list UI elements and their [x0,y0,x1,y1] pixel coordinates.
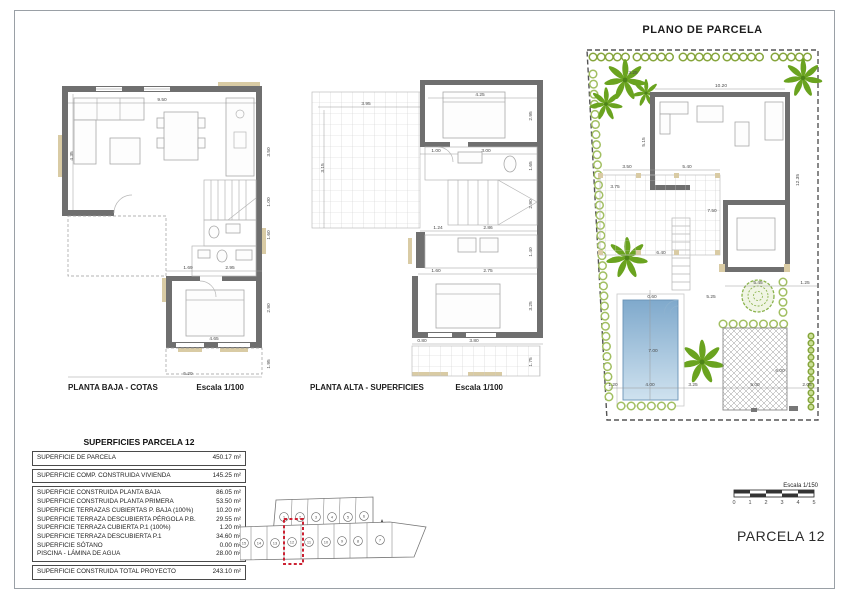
chair [198,118,205,128]
dim-label: 0.80 [417,338,427,344]
window-accent [58,135,62,177]
wall [416,232,425,268]
wall [723,200,728,272]
dim-label: 3.15 [320,163,326,173]
sink [198,250,210,258]
dim-label: 5.25 [706,294,716,300]
table-row: SUPERFICIE TERRAZA DESCUBIERTA P.1 34.60… [37,533,241,542]
dim-label: 2.90 [528,199,534,209]
dim-label: 3.00 [481,148,491,154]
dim-label: 3.95 [361,101,371,107]
surfaces-table: SUPERFICIES PARCELA 12 SUPERFICIE DE PAR… [32,437,246,583]
chair [157,118,164,128]
dim-label: 3.50 [266,147,272,157]
planta-alta-caption: PLANTA ALTA - SUPERFICIES Escala 1/100 [310,383,503,392]
dim-label: 7.00 [648,348,658,354]
sink [458,152,482,163]
dining-table [164,112,198,160]
dim-label: 5.40 [682,164,692,170]
table-row: SUPERFICIE TERRAZA CUBIERTA P.1 (100%) 1… [37,524,241,533]
scale-tick: 3 [780,500,783,505]
door-arc [114,195,132,213]
dim-label: 2.95 [528,111,534,121]
site-plan-drawing: 3.25 10.20 5.15 12.35 3.50 5.40 3.75 7.5… [575,40,830,430]
plan-caption: PLANTA BAJA - COTAS [68,383,158,392]
chair [198,138,205,148]
window-accent [162,278,166,302]
parcel-number: 10 [324,540,329,545]
surfaces-table-title: SUPERFICIES PARCELA 12 [32,437,246,447]
appliance [458,238,476,252]
window [428,333,452,337]
planta-baja-caption: PLANTA BAJA - COTAS Escala 1/100 [68,383,244,392]
wall [62,210,114,216]
kitchen-island [735,122,749,146]
dim-label: 1.69 [183,265,193,271]
dim-label: 0.60 [647,294,657,300]
dim-label: 5.45 [753,280,763,286]
planta-alta-drawing: 3.95 3.15 4.25 2.95 1.00 3.00 1.65 [308,80,543,380]
plan-scale: Escala 1/100 [455,383,503,392]
sofa [660,102,688,114]
dim-label: 2.05 [802,382,812,388]
toilet [217,250,227,262]
wall [412,276,418,332]
wall [256,86,262,348]
dim-label: 3.80 [469,338,479,344]
drawing-sheet: 9.50 4.35 3.50 1.00 1.60 1.69 2.95 2.90 … [0,0,849,600]
dim-label: 1.00 [266,197,272,207]
terrace-outline [68,216,166,276]
wall [166,276,200,281]
site-plan-title: PLANO DE PARCELA [575,24,830,36]
scale-tick: 4 [796,500,799,505]
table-row: PISCINA - LÁMINA DE AGUA 28.00 m² [37,550,241,559]
dim-label: 1.24 [433,225,443,231]
wall [166,276,172,348]
scale-bar: 0 1 2 3 4 5 [730,489,824,505]
wall [723,200,790,205]
parcel-number: 13 [273,541,278,546]
dim-label: 1.75 [528,357,534,367]
scale-tick: 5 [812,500,815,505]
sofa [74,120,96,164]
dim-label: 4.65 [209,336,219,342]
kitchen-counter [765,102,783,140]
table-row: SUPERFICIE CONSTRUIDA PLANTA PRIMERA 53.… [37,498,241,507]
gate [751,408,757,412]
dim-label: 3.25 [688,382,698,388]
terrace-grid [312,92,420,228]
table-row: SUPERFICIE DE PARCELA 450.17 m² [37,454,241,463]
sofa [660,114,670,134]
plan-caption: PLANTA ALTA - SUPERFICIES [310,383,424,392]
dim-label: 5.15 [641,137,647,147]
bed [737,218,775,250]
dim-label: 1.25 [800,280,810,286]
stairs [448,180,537,225]
wall [420,80,425,147]
shower [236,250,252,260]
toilet [504,156,516,172]
wall [62,86,68,216]
table-row: SUPERFICIE COMP. CONSTRUIDA VIVIENDA 145… [37,472,241,481]
window-accent [178,348,202,352]
wall [723,267,790,272]
parcel-key-plan: 1 2 3 4 5 6 15 14 13 12 11 [240,485,440,585]
bed [443,92,505,138]
parcel-number: 14 [257,541,262,546]
parcel-number: 12 [290,540,295,545]
dim-label: 2.75 [483,268,493,274]
sofa [74,98,144,120]
dim-label: 1.60 [266,230,272,240]
window-accent [784,264,790,272]
table-section: SUPERFICIE CONSTRUIDA PLANTA BAJA 86.05 … [32,486,246,562]
window-accent [220,348,248,352]
dim-label: 3.50 [622,164,632,170]
dim-label: 1.65 [528,161,534,171]
dim-label: 4.00 [645,382,655,388]
dim-label: 6.00 [775,368,785,374]
window-accent [408,238,412,264]
dim-label: 2.86 [483,225,493,231]
stairs [204,180,256,220]
dim-label: 2.95 [225,265,235,271]
dim-label: 1.60 [431,268,441,274]
dim-label: 4.25 [475,92,485,98]
dim-label: 5.20 [183,371,193,377]
sink [226,224,240,233]
table-row: SUPERFICIE TERRAZA DESCUBIERTA PÉRGOLA P… [37,516,241,525]
wall [222,276,262,281]
toilet [209,226,219,238]
scale-tick: 2 [764,500,767,505]
dim-label: 3.75 [610,184,620,190]
table-section: SUPERFICIE DE PARCELA 450.17 m² [32,451,246,466]
bed [186,290,244,336]
dining-table [697,106,723,122]
dim-label: 12.35 [795,174,801,186]
dim-label: 1.40 [528,247,534,257]
sheet-name: PARCELA 12 [700,528,825,544]
table-section: SUPERFICIE CONSTRUIDA TOTAL PROYECTO 243… [32,565,246,580]
dim-label: 4.35 [69,151,75,161]
table-section: SUPERFICIE COMP. CONSTRUIDA VIVIENDA 145… [32,469,246,484]
window-accent [719,264,725,272]
wall [650,92,790,97]
table-row: SUPERFICIE CONSTRUIDA TOTAL PROYECTO 243… [37,568,241,577]
chair [157,138,164,148]
scale-tick: 0 [732,500,735,505]
appliance [480,238,498,252]
dim-label: 7.50 [707,208,717,214]
window [176,343,204,347]
dim-label: 3.25 [528,301,534,311]
window-accent [262,228,266,254]
plan-scale: Escala 1/100 [196,383,244,392]
scale-tick: 1 [748,500,751,505]
table-row: SUPERFICIE CONSTRUIDA PLANTA BAJA 86.05 … [37,489,241,498]
gate [789,406,798,411]
graphic-scale: Escala 1/150 0 1 2 3 4 5 [730,483,824,510]
parcel-strip [240,522,426,560]
dim-label: 2.90 [266,303,272,313]
wall [468,142,543,147]
wall [537,80,543,338]
planta-baja-drawing: 9.50 4.35 3.50 1.00 1.60 1.69 2.95 2.90 … [58,80,278,382]
bed [436,284,500,328]
window [466,333,496,337]
window-accent [218,82,260,86]
table-row: SUPERFICIE TERRAZAS CUBIERTAS P. BAJA (1… [37,507,241,516]
dim-label: 5.00 [750,382,760,388]
dim-label: 1.95 [266,359,272,369]
window [218,343,250,347]
dim-label: 3.25 [628,70,638,76]
wall [420,142,450,147]
terrace-grid [412,346,540,376]
palm-tree-icon [679,340,724,384]
dim-label: 6.40 [656,250,666,256]
dim-label: 1.00 [431,148,441,154]
palm-tree-icon [783,58,823,97]
wall [785,92,790,272]
dim-label: 1.20 [608,382,618,388]
wall [420,80,543,85]
dim-label: 9.50 [157,97,167,103]
parcel-number: 15 [242,541,247,546]
dim-label: 10.20 [715,83,727,89]
coffee-table [110,138,140,164]
